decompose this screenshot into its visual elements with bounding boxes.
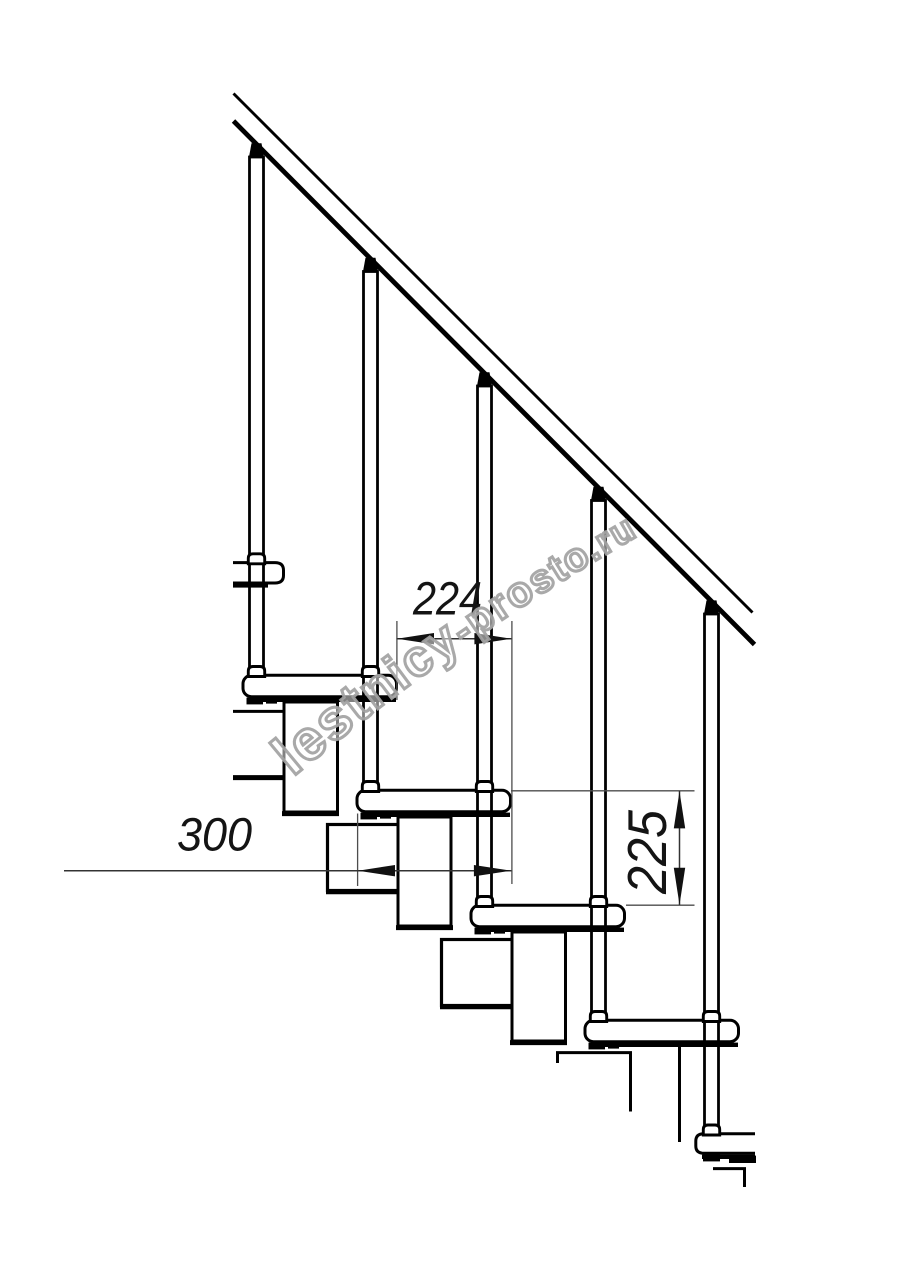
- svg-text:300: 300: [177, 807, 252, 860]
- svg-text:225: 225: [616, 810, 678, 895]
